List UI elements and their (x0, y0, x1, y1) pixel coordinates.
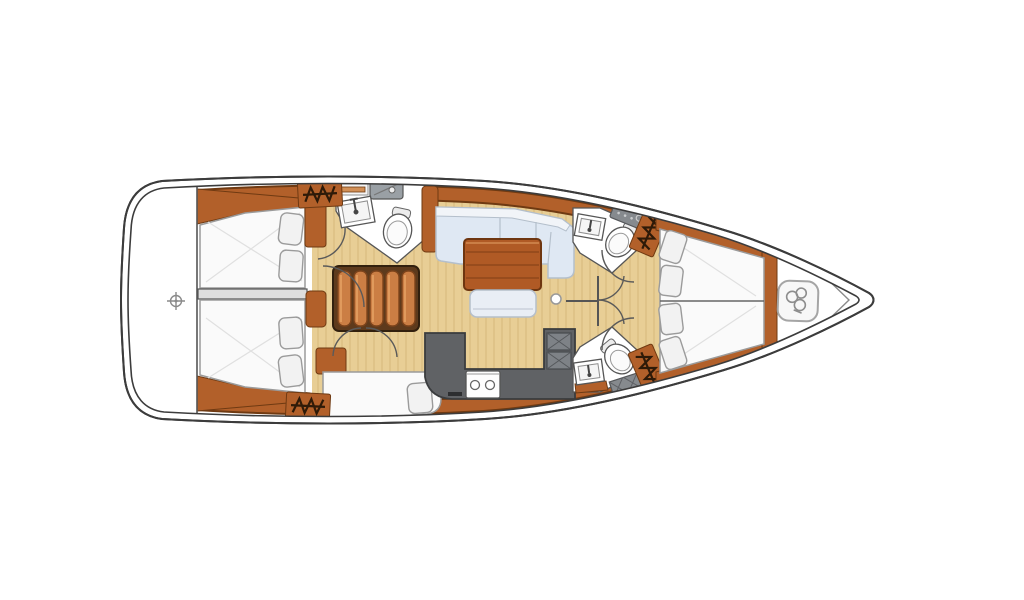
nightstand (306, 291, 326, 327)
washbasin (574, 359, 605, 385)
burner (486, 381, 495, 390)
burner (471, 381, 480, 390)
stair-tread (402, 271, 415, 326)
pillow (278, 212, 305, 246)
stair-tread (370, 271, 383, 326)
table-post (551, 294, 561, 304)
fridge-handle (448, 392, 462, 396)
berth-trim (316, 348, 346, 374)
stair-tread (354, 271, 367, 326)
pillow (278, 354, 305, 388)
pillow (278, 250, 303, 283)
interior (167, 180, 849, 420)
pillow (658, 303, 683, 335)
stove (466, 371, 500, 398)
companionway-stairs (333, 266, 419, 331)
windlass-icon (777, 280, 818, 321)
pillow (278, 317, 303, 350)
aft-cabin-starboard (200, 300, 305, 393)
floor-plan-svg (0, 0, 1024, 600)
washbasin (574, 214, 605, 241)
salon-stool (470, 290, 536, 317)
pillow (658, 265, 683, 297)
stair-tread (386, 271, 399, 326)
yacht-floor-plan-image (0, 0, 1024, 600)
berth-divider-bulkhead (198, 289, 307, 299)
stair-tread (338, 271, 351, 326)
shelf-rail (341, 187, 365, 192)
